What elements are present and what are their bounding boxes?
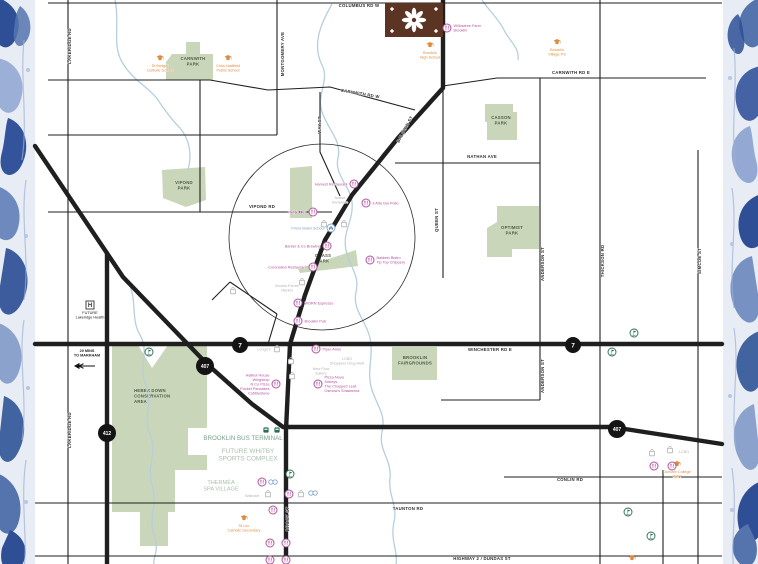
poi-label: Lakeridge Health xyxy=(76,315,105,319)
restaurant-icon: Baldwin BistroTip Top Chippery xyxy=(366,256,405,265)
park-label: CONSERVATION xyxy=(134,394,170,399)
street-label: WAY ST xyxy=(317,116,322,134)
highway-badge: 7 xyxy=(232,337,248,353)
poi-label: Harvest Restaurant xyxy=(315,182,349,186)
poi-label: Tip Top Chippery xyxy=(377,261,406,265)
poi-label: Brooklin Pub xyxy=(305,319,327,323)
poi-label: Brooklin xyxy=(423,51,437,55)
street-label: SIMCOE ST xyxy=(697,248,702,274)
poi-label: FUTURE xyxy=(82,311,98,315)
street-label: QUEEN ST xyxy=(434,208,439,232)
poi-label: SPORTS COMPLEX xyxy=(218,456,278,463)
bus-icon xyxy=(274,427,279,432)
poi-text: THERMËASPA VILLAGE xyxy=(203,479,239,493)
poi-label: Holly's Deli xyxy=(288,210,307,214)
brooklin-area-map: CARNWITHPARKVIPONDPARKCASSONPARKOPTIMIST… xyxy=(0,0,758,564)
poi-label: 20 MINS xyxy=(80,349,95,353)
park-label: PARK xyxy=(178,186,191,191)
highway-badge: 407 xyxy=(608,420,626,438)
street-label: BROCK ST xyxy=(285,507,290,532)
park-label: CASSON xyxy=(491,115,511,120)
poi-label: Hardware xyxy=(332,200,348,204)
restaurant-icon xyxy=(269,506,277,514)
street-label: WINCHESTER RD E xyxy=(468,347,512,352)
oo-icon xyxy=(309,491,318,495)
poi-label: Piper Arms xyxy=(323,347,342,351)
park-label: FAIRGROUNDS xyxy=(398,361,432,366)
poi-label: St Leo xyxy=(239,524,250,528)
bus-icon xyxy=(263,427,268,432)
street-label: TAUNTON RD xyxy=(393,506,424,511)
poi-label: Prima Ballet School xyxy=(291,226,324,230)
poi-label: New Flow xyxy=(313,367,330,371)
golf-icon xyxy=(286,470,294,478)
street-label: THICKSON RD xyxy=(600,245,605,278)
poi-label: Cobblestone xyxy=(248,391,269,395)
park-label: PARK xyxy=(187,62,200,67)
poi-label: WORN Espresso xyxy=(305,301,334,305)
poi-label: Coronation Restaurant xyxy=(268,265,307,269)
restaurant-icon xyxy=(668,462,676,470)
golf-icon xyxy=(608,348,616,356)
restaurant-icon xyxy=(285,490,293,498)
restaurant-icon xyxy=(266,556,274,564)
highway-badge: 407 xyxy=(196,357,214,375)
poi-label: TO MARKHAM xyxy=(74,353,100,357)
poi-text: FUTURE WHITBYSPORTS COMPLEX xyxy=(218,448,278,463)
highway-badge: 7 xyxy=(565,337,581,353)
highway-number: 407 xyxy=(201,364,210,370)
poi-label: Brooklin xyxy=(550,48,564,52)
park-label: HEBER DOWN xyxy=(134,388,166,393)
park-label: BROOKLIN xyxy=(403,355,428,360)
poi-label: Village PS xyxy=(548,52,566,56)
restaurant-icon xyxy=(282,556,290,564)
street-label: ANDERSON ST xyxy=(540,247,545,281)
poi-text: Walmart xyxy=(245,494,260,498)
restaurant-icon xyxy=(258,478,266,486)
poi-label: Longo's xyxy=(257,347,270,351)
park-label: OPTIMIST xyxy=(501,225,523,230)
golf-icon xyxy=(647,532,655,540)
decorative-floral-border-left xyxy=(0,0,35,564)
poi-label: Baldwin Bistro xyxy=(377,256,401,260)
poi-label: Catholic Secondary xyxy=(228,528,261,532)
golf-icon xyxy=(145,348,153,356)
highway-number: 7 xyxy=(238,342,242,349)
poi-label: Chris Hadfield xyxy=(216,64,240,68)
highway-number: 412 xyxy=(103,431,112,437)
park-label: CARNWITH xyxy=(181,56,206,61)
poi-label: Pocket Pancakes xyxy=(240,387,269,391)
restaurant-icon xyxy=(650,462,658,470)
street-label: HIGHWAY 2 / DUNDAS ST xyxy=(453,556,511,561)
poi-label: Brooks Farms xyxy=(275,284,299,288)
poi-label: Willowtree Farm xyxy=(454,24,481,28)
street-label: COLUMBUS RD W xyxy=(339,3,380,8)
poi-label: FUTURE WHITBY xyxy=(222,448,275,455)
park-label: PARK xyxy=(495,121,508,126)
restaurant-icon xyxy=(266,539,274,547)
poi-label: Osmow's Shawarma xyxy=(325,389,361,393)
poi-label: The Chopped Leaf xyxy=(325,385,357,389)
poi-label: Il Arte Del Pollo xyxy=(373,201,399,205)
restaurant-icon xyxy=(282,539,290,547)
street-label: NATHAN AVE xyxy=(467,154,497,159)
poi-label: Native xyxy=(335,196,346,200)
golf-icon xyxy=(624,508,632,516)
poi-label: BROOKLIN BUS TERMINAL xyxy=(203,435,283,442)
poi-label: SPA VILLAGE xyxy=(203,487,239,493)
brochure-page: CARNWITHPARKVIPONDPARKCASSONPARKOPTIMIST… xyxy=(0,0,758,564)
poi-label: St Bridget xyxy=(152,64,170,68)
poi-label: LCBO xyxy=(342,357,352,361)
street-label: LAKERIDGE RD xyxy=(67,28,72,64)
park-label: AREA xyxy=(134,399,147,404)
svg-text:H: H xyxy=(88,303,92,309)
poi-label: N Co Pizza xyxy=(251,382,271,386)
decorative-floral-border-right xyxy=(723,0,758,564)
poi-label: Market xyxy=(281,288,294,292)
park-label: PARK xyxy=(506,231,519,236)
poi-label: Brooklin xyxy=(454,29,468,33)
poi-label: Catholic School xyxy=(147,68,174,72)
poi-label: UOIT xyxy=(672,474,682,478)
poi-label: Durham College xyxy=(663,470,690,474)
highway-badge: 412 xyxy=(98,424,116,442)
poi-label: Barber & Co Brewing xyxy=(285,244,321,248)
street-label: CARNWITH RD E xyxy=(552,70,590,75)
poi-text: BROOKLIN BUS TERMINAL xyxy=(203,435,283,442)
golf-icon xyxy=(630,329,638,337)
poi-label: Sobeys xyxy=(325,380,338,384)
street-label: LAKERIDGE RD xyxy=(67,412,72,448)
oo-icon xyxy=(269,480,278,484)
highway-number: 7 xyxy=(571,342,575,349)
poi-label: Shoppers Drug Mart xyxy=(330,361,365,365)
park-label: VIPOND xyxy=(175,180,193,185)
developer-logo xyxy=(385,3,443,37)
poi-label: Public School xyxy=(216,68,239,72)
poi-label: High School xyxy=(420,55,441,59)
street-label: VIPOND RD xyxy=(249,204,275,209)
highway-number: 407 xyxy=(613,427,622,433)
poi-label: Pizza Nova xyxy=(325,376,345,380)
poi-text: LCBO xyxy=(679,450,689,454)
street-label: MONTGOMERY AVE xyxy=(280,32,285,77)
developer-logo-block xyxy=(385,3,443,37)
street-label: CONLIN RD xyxy=(557,477,583,482)
street-label: ANDERSON ST xyxy=(540,359,545,393)
poi-label: Halibut House xyxy=(246,373,270,377)
poi-label: Wingshop xyxy=(253,378,270,382)
poi-label: THERMËA xyxy=(207,479,235,486)
poi-label: LCBO xyxy=(679,450,689,454)
poi-label: Walmart xyxy=(245,494,260,498)
